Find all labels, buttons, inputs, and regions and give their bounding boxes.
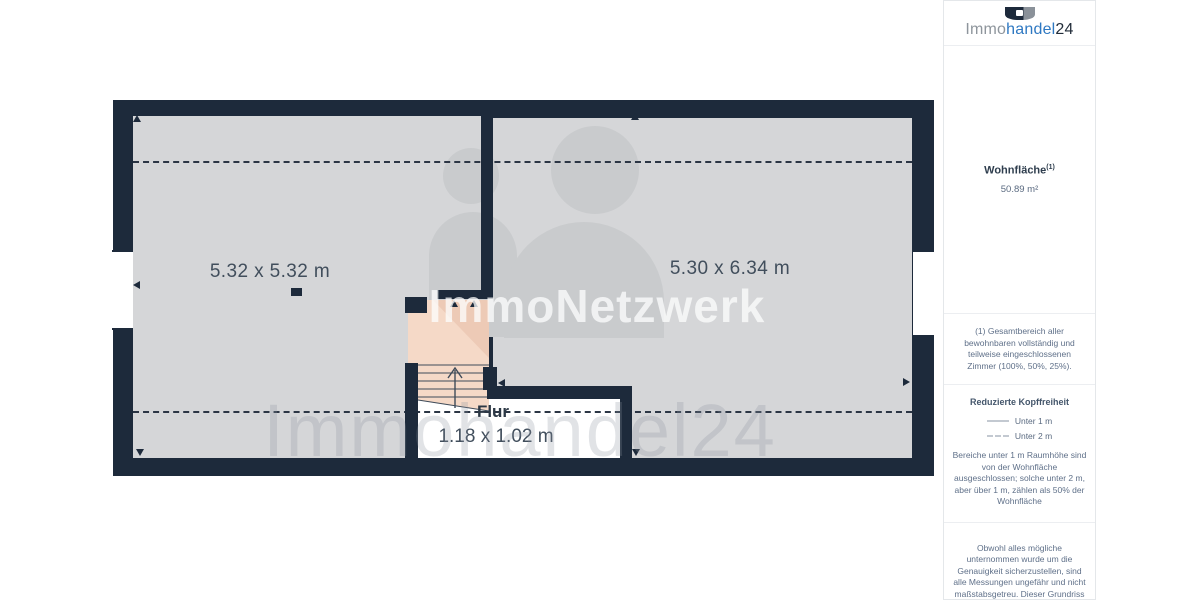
legend-line-under-1m-icon [987, 420, 1009, 422]
brand-logo-icon [1005, 7, 1035, 20]
hallway-top-wall [487, 386, 632, 399]
stair-top-wall [437, 290, 493, 299]
window-right [913, 250, 934, 337]
floorplan-page: 5.32 x 5.32 m 5.30 x 6.34 m Flur 1.18 x … [0, 0, 1200, 600]
legend-label: Unter 1 m [1015, 416, 1052, 426]
hallway-right-wall [620, 386, 632, 458]
brand-logo-text: Immohandel24 [965, 21, 1073, 39]
living-area-section: Wohnfläche(1) 50.89 m² [944, 46, 1095, 314]
headroom-dashed-line-top [133, 161, 912, 163]
logo-mid: handel [1006, 21, 1055, 38]
legend-item-under-2m: Unter 2 m [952, 431, 1087, 441]
logo-dot [1016, 10, 1023, 16]
measure-arrow-icon [133, 281, 140, 289]
headroom-legend-section: Reduzierte Kopffreiheit Unter 1 m Unter … [944, 385, 1095, 523]
info-sidebar: Immohandel24 Wohnfläche(1) 50.89 m² (1) … [943, 0, 1096, 600]
legend-label: Unter 2 m [1015, 431, 1052, 441]
person-silhouette-watermark [551, 126, 639, 214]
disclaimer-accuracy: Obwohl alles mögliche unternommen wurde … [953, 543, 1086, 600]
footnote-section: (1) Gesamtbereich aller bewohnbaren voll… [944, 314, 1095, 385]
hallway-label: Flur [443, 402, 543, 422]
stair-left-wall [405, 363, 418, 476]
measure-arrow-icon [903, 378, 910, 386]
divider-wall [481, 100, 493, 290]
window-left [112, 250, 133, 330]
footnote-ref: (1) [1046, 164, 1055, 171]
measure-arrow-icon [498, 379, 505, 387]
living-area-value: 50.89 m² [1001, 184, 1039, 195]
living-area-label: Wohnfläche [984, 165, 1046, 177]
measure-arrow-icon [631, 113, 639, 120]
measure-arrow-icon [136, 449, 144, 456]
logo-prefix: Immo [965, 21, 1006, 38]
measure-arrow-icon [632, 449, 640, 456]
measure-arrow-icon [133, 115, 141, 122]
legend-item-under-1m: Unter 1 m [952, 416, 1087, 426]
brand-logo: Immohandel24 [944, 1, 1095, 46]
logo-suffix: 24 [1055, 21, 1073, 38]
living-area-title: Wohnfläche(1) [984, 164, 1055, 177]
headroom-note: Bereiche unter 1 m Raumhöhe sind von der… [952, 450, 1087, 508]
room-right-dimensions: 5.30 x 6.34 m [630, 258, 830, 280]
disclaimer-section: Obwohl alles mögliche unternommen wurde … [944, 523, 1095, 600]
scale-marker [291, 288, 302, 296]
headroom-title: Reduzierte Kopffreiheit [952, 397, 1087, 407]
hallway-dimensions: 1.18 x 1.02 m [396, 426, 596, 448]
measure-arrow-icon [450, 300, 458, 307]
stair-stub-wall [405, 297, 427, 313]
legend-line-under-2m-icon [987, 435, 1009, 437]
room-left-dimensions: 5.32 x 5.32 m [170, 261, 370, 283]
measure-arrow-icon [470, 300, 478, 307]
